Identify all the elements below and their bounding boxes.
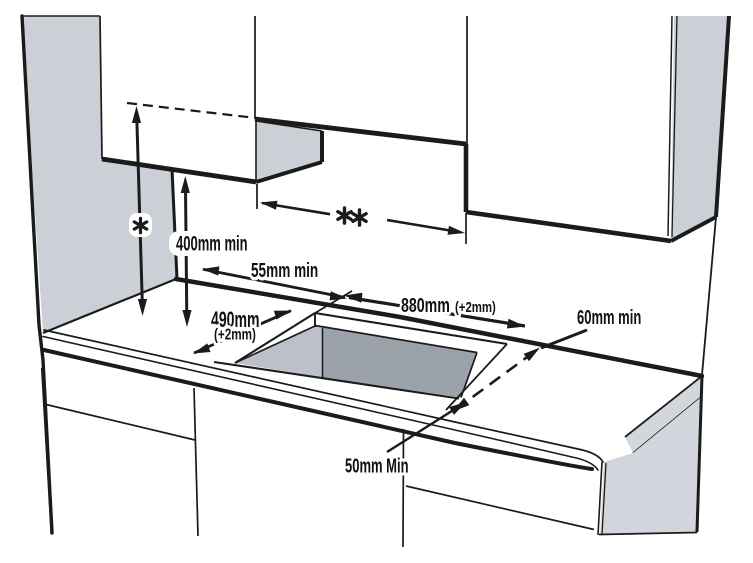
svg-text:60mm min: 60mm min <box>577 306 641 329</box>
svg-text:(+2mm): (+2mm) <box>214 325 256 343</box>
svg-text:55mm min: 55mm min <box>251 259 318 281</box>
svg-text:50mm Min: 50mm Min <box>345 455 409 478</box>
svg-text:400mm min: 400mm min <box>176 231 248 255</box>
svg-text:(+2mm): (+2mm) <box>455 298 496 315</box>
svg-text:880mm: 880mm <box>401 294 450 317</box>
